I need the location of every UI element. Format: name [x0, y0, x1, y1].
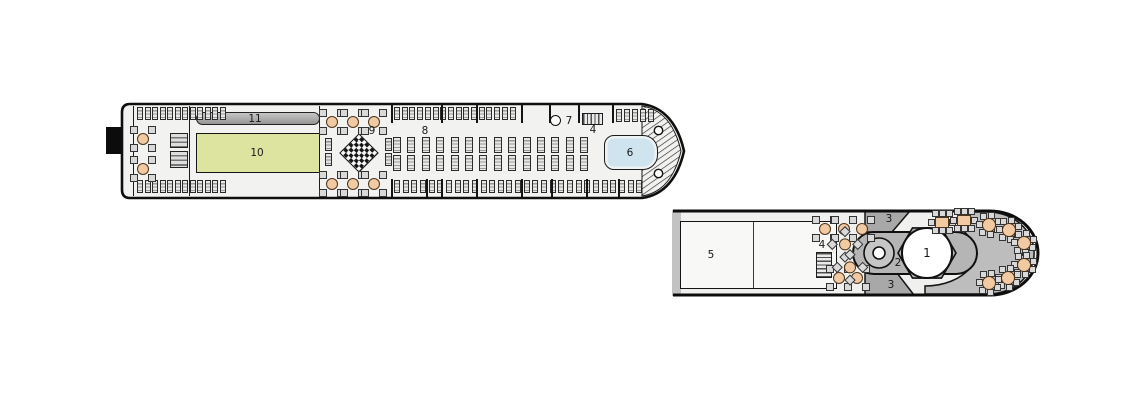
lounger-icon	[523, 155, 531, 171]
lounger-icon	[465, 155, 473, 171]
bench-icon	[385, 153, 392, 166]
lounger-icon	[624, 109, 630, 122]
lounger-icon	[137, 107, 143, 120]
lounger-icon	[402, 107, 408, 120]
lounger-icon	[220, 107, 226, 120]
chair-icon	[379, 109, 387, 117]
chair-icon	[148, 126, 156, 134]
chair-icon	[148, 174, 156, 182]
lounger-icon	[566, 137, 574, 153]
lounger-icon	[481, 180, 487, 193]
table-icon	[361, 171, 385, 195]
lounger-icon	[422, 155, 430, 171]
chair-icon	[1022, 271, 1029, 278]
lounger-icon	[524, 180, 530, 193]
chair-icon	[852, 239, 863, 250]
lounger-icon	[411, 180, 417, 193]
upper-deck: 11 10 9 8 7 4 6	[106, 100, 690, 202]
divider-tick	[426, 179, 428, 198]
lounger-icon	[425, 107, 431, 120]
lounger-icon	[175, 180, 181, 193]
lounger-icon	[456, 107, 462, 120]
lounger-icon	[506, 180, 512, 193]
chair-icon	[130, 126, 138, 134]
lounger-icon	[632, 109, 638, 122]
chair-icon	[340, 127, 348, 135]
lounger-icon	[463, 107, 469, 120]
deck-plan-scene: 11 10 9 8 7 4 6 5 4 3 3 2	[0, 0, 1140, 400]
chair-icon	[340, 171, 348, 179]
deck-number-label: 2	[895, 258, 902, 269]
chair-icon	[361, 109, 369, 117]
divider-tick	[578, 104, 580, 123]
chair-icon	[939, 227, 946, 234]
deck-number-label: 7	[566, 116, 573, 127]
lounger-icon	[551, 155, 559, 171]
deck-number-label: 8	[422, 126, 429, 137]
chair-icon	[319, 171, 327, 179]
chair-icon	[361, 171, 369, 179]
lounger-icon	[508, 155, 516, 171]
table-top	[137, 163, 149, 175]
lounger-icon	[145, 107, 151, 120]
lounger-icon	[212, 107, 218, 120]
lounger-icon	[602, 180, 608, 193]
rack-icon	[170, 151, 188, 168]
lounger-icon	[433, 107, 439, 120]
table-top	[137, 133, 149, 145]
deck-number-label: 4	[819, 240, 826, 251]
table-top	[326, 178, 338, 190]
table-icon	[130, 156, 154, 180]
deck-number-label: 3	[888, 280, 895, 291]
chair-icon	[961, 225, 968, 232]
lounger-icon	[567, 180, 573, 193]
rack-icon	[170, 133, 188, 148]
deck-number-label: 11	[248, 114, 261, 125]
bench-icon	[325, 138, 332, 151]
lounger-icon	[182, 180, 188, 193]
chair-icon	[130, 174, 138, 182]
lounger-icon	[494, 155, 502, 171]
lounger-icon	[648, 109, 654, 122]
lounger-icon	[409, 107, 415, 120]
chair-icon	[932, 227, 939, 234]
table-top	[326, 116, 338, 128]
table-top	[1017, 236, 1031, 250]
lounger-icon	[436, 155, 444, 171]
table-top	[819, 223, 831, 235]
chair-icon	[968, 225, 975, 232]
chair-icon	[148, 156, 156, 164]
lounger-icon	[417, 107, 423, 120]
lounger-icon	[616, 109, 622, 122]
chair-icon	[950, 217, 957, 224]
lounger-icon	[190, 107, 196, 120]
chair-icon	[954, 225, 961, 232]
lounger-icon	[537, 155, 545, 171]
lounger-icon	[479, 107, 485, 120]
divider-tick	[391, 104, 393, 123]
lounger-icon	[448, 107, 454, 120]
lounger-icon	[167, 180, 173, 193]
lounger-icon	[407, 137, 415, 153]
chair-icon	[319, 109, 327, 117]
lounger-icon	[593, 180, 599, 193]
lounger-icon	[489, 180, 495, 193]
chair-icon	[987, 289, 994, 296]
bench-icon	[385, 138, 392, 151]
lounger-icon	[160, 180, 166, 193]
lounger-icon	[190, 180, 196, 193]
lounger-icon	[197, 180, 203, 193]
lounger-icon	[407, 155, 415, 171]
lounger-icon	[537, 137, 545, 153]
table-icon	[950, 208, 976, 230]
lounger-icon	[580, 155, 588, 171]
lower-deck: 5 4 3 3 2 1	[672, 205, 1044, 305]
divider-tick	[586, 179, 588, 198]
chair-icon	[867, 216, 875, 224]
lounger-icon	[393, 155, 401, 171]
lounger-icon	[394, 107, 400, 120]
lounger-icon	[175, 107, 181, 120]
lounger-icon	[167, 107, 173, 120]
bench-icon	[325, 153, 332, 166]
chair-icon	[148, 144, 156, 152]
chair-icon	[319, 127, 327, 135]
lounger-icon	[636, 180, 642, 193]
divider-tick	[618, 179, 620, 198]
lounger-icon	[576, 180, 582, 193]
table-icon	[130, 126, 154, 150]
table-top	[982, 276, 996, 290]
divider-tick	[441, 179, 443, 198]
table-top	[957, 215, 971, 226]
lounger-icon	[479, 155, 487, 171]
lounger-icon	[628, 180, 634, 193]
lounger-icon	[152, 107, 158, 120]
table-top	[368, 178, 380, 190]
chair-icon	[987, 231, 994, 238]
lounger-icon	[541, 180, 547, 193]
lounger-icon	[532, 180, 538, 193]
chair-icon	[130, 156, 138, 164]
chair-icon	[379, 127, 387, 135]
lounger-icon	[451, 137, 459, 153]
lounger-icon	[446, 180, 452, 193]
lounger-icon	[502, 107, 508, 120]
lounger-icon	[494, 107, 500, 120]
lounger-icon	[422, 137, 430, 153]
divider-tick	[551, 179, 553, 198]
area-7-circle	[550, 115, 561, 126]
chair-icon	[831, 216, 839, 224]
lounger-icon	[182, 107, 188, 120]
divider-tick	[391, 179, 393, 198]
divider-tick	[476, 179, 478, 198]
lounger-icon	[494, 137, 502, 153]
lounger-icon	[479, 137, 487, 153]
lounger-icon	[205, 180, 211, 193]
table-top	[1001, 271, 1015, 285]
lounger-icon	[429, 180, 435, 193]
deck-number-label: 1	[923, 247, 931, 259]
lounger-icon	[566, 155, 574, 171]
chair-icon	[812, 216, 820, 224]
table-top	[935, 217, 949, 228]
lounger-icon	[205, 107, 211, 120]
chair-icon	[862, 283, 870, 291]
lounger-icon	[510, 107, 516, 120]
lounger-icon	[465, 137, 473, 153]
divider-tick	[521, 179, 523, 198]
lounger-icon	[403, 180, 409, 193]
chair-icon	[340, 109, 348, 117]
deck-number-label: 9	[369, 126, 376, 137]
round-table-icon	[975, 269, 1001, 295]
chair-icon	[319, 189, 327, 197]
table-top	[347, 116, 359, 128]
lounger-icon	[498, 180, 504, 193]
divider-tick	[521, 104, 523, 123]
lounger-icon	[393, 137, 401, 153]
lounger-icon	[558, 180, 564, 193]
deck-number-label: 4	[590, 125, 597, 136]
divider-tick	[441, 104, 443, 123]
table-top	[856, 223, 868, 235]
chair-icon	[867, 234, 875, 242]
lounger-icon	[551, 137, 559, 153]
lounger-icon	[580, 137, 588, 153]
lounger-icon	[523, 137, 531, 153]
deck-number-label: 3	[886, 214, 893, 225]
chair-icon	[928, 219, 935, 226]
room-divider	[753, 222, 754, 288]
lounger-icon	[455, 180, 461, 193]
lounger-icon	[486, 107, 492, 120]
lounger-icon	[508, 137, 516, 153]
lounger-icon	[160, 107, 166, 120]
table-top	[982, 218, 996, 232]
chair-icon	[361, 189, 369, 197]
lounger-icon	[619, 180, 625, 193]
deck-number-label: 10	[250, 148, 263, 159]
divider-tick	[476, 104, 478, 123]
lounger-icon	[451, 155, 459, 171]
deck-number-label: 6	[627, 148, 634, 159]
lounger-icon	[197, 107, 203, 120]
lounger-icon	[212, 180, 218, 193]
table-top	[347, 178, 359, 190]
chair-icon	[340, 189, 348, 197]
chair-icon	[826, 283, 834, 291]
chair-icon	[849, 216, 857, 224]
lounger-icon	[394, 180, 400, 193]
lounger-icon	[640, 109, 646, 122]
lounger-icon	[436, 137, 444, 153]
deck-number-label: 5	[708, 250, 715, 261]
divider-tick	[612, 104, 614, 123]
lounger-icon	[610, 180, 616, 193]
lounger-icon	[463, 180, 469, 193]
chair-icon	[379, 189, 387, 197]
chair-icon	[130, 144, 138, 152]
table-top	[842, 259, 859, 276]
chair-icon	[1006, 284, 1013, 291]
chair-icon	[379, 171, 387, 179]
lounger-icon	[220, 180, 226, 193]
